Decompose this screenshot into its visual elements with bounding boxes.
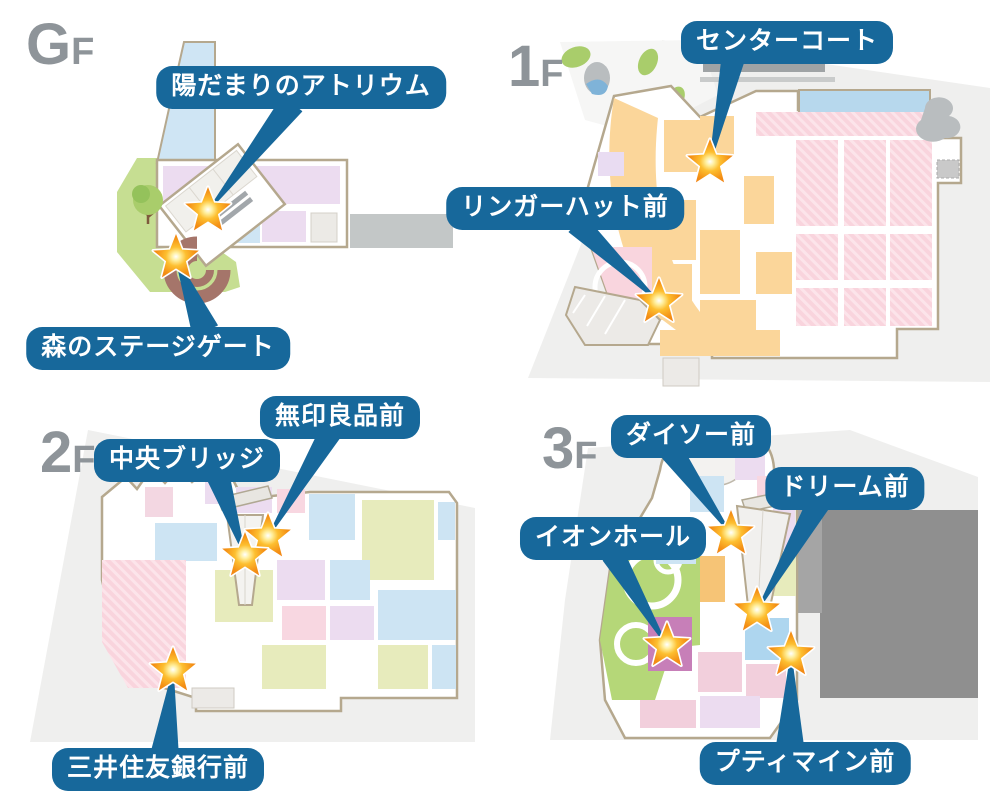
floor-map-gf: [117, 42, 453, 297]
floor-label-sub: F: [540, 53, 563, 95]
floor-label-main: G: [26, 12, 71, 77]
floor-label-main: 2: [40, 420, 72, 485]
floor-label-sub: F: [71, 31, 94, 73]
floor-map-3f: [550, 430, 978, 740]
floor-map-2f: [30, 430, 475, 742]
3f-dark-block: [820, 510, 978, 698]
gf-gray-wing: [350, 214, 453, 248]
floor-map-1f: [528, 40, 990, 386]
floor-label-gf: GF: [26, 16, 94, 74]
floor-label-sub: F: [72, 439, 95, 481]
floor-label-main: 1: [508, 34, 540, 99]
floor-label-sub: F: [574, 435, 597, 477]
floor-maps-artwork: [0, 0, 990, 799]
floor-label-main: 3: [542, 416, 574, 481]
mall-floor-guide: GF 1F 2F 3F 陽だまりのアトリウム森のステージゲートセンターコートリン…: [0, 0, 990, 799]
floor-label-1f: 1F: [508, 38, 563, 96]
floor-label-2f: 2F: [40, 424, 95, 482]
floor-label-3f: 3F: [542, 420, 597, 478]
